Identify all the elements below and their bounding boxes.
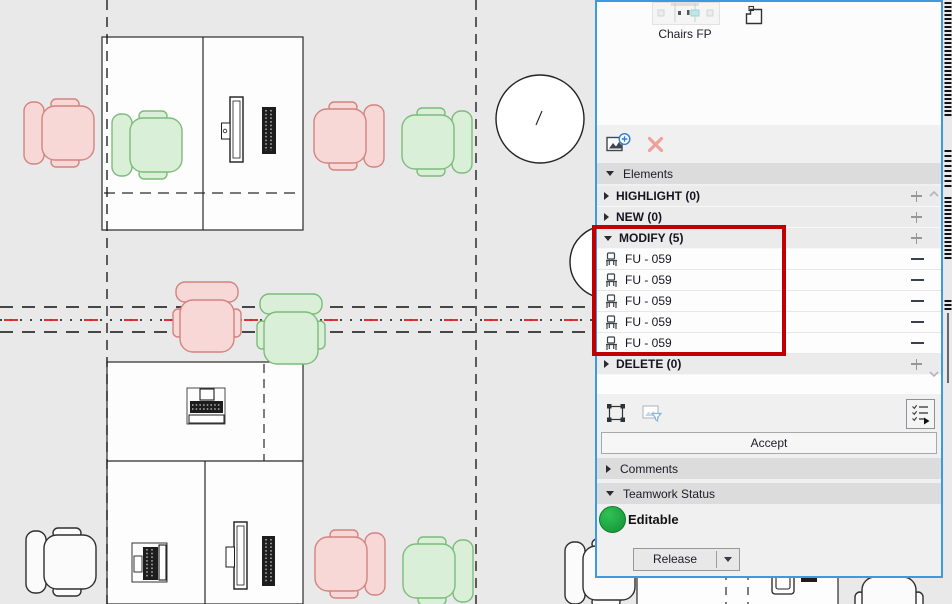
chair-element-icon	[604, 294, 618, 309]
remove-element-button[interactable]	[911, 321, 924, 324]
elements-section-header[interactable]: Elements	[597, 163, 941, 184]
editable-status-label: Editable	[628, 512, 679, 527]
comments-section-header[interactable]: Comments	[597, 458, 941, 479]
release-button-label[interactable]: Release	[634, 549, 716, 570]
expand-caret-icon	[604, 213, 609, 221]
elements-header-label: Elements	[623, 167, 673, 181]
element-row[interactable]: FU - 059	[597, 249, 941, 270]
element-label: FU - 059	[625, 336, 672, 350]
marquee-select-button[interactable]	[606, 403, 626, 423]
add-to-section-button[interactable]	[911, 233, 922, 244]
add-to-section-button[interactable]	[911, 191, 922, 202]
section-label: NEW (0)	[616, 210, 662, 224]
library-item-label: Chairs FP	[633, 27, 737, 41]
expand-caret-icon	[604, 360, 609, 368]
delete-button[interactable]	[647, 136, 664, 153]
release-split-button[interactable]: Release	[633, 548, 740, 571]
expand-caret-icon	[606, 465, 611, 473]
section-label: DELETE (0)	[616, 357, 681, 371]
scroll-down-icon[interactable]	[928, 370, 940, 378]
remove-element-button[interactable]	[911, 300, 924, 303]
remove-element-button[interactable]	[911, 342, 924, 345]
element-row[interactable]: FU - 059	[597, 291, 941, 312]
modify-section-row[interactable]: MODIFY (5)	[597, 228, 941, 249]
comments-header-label: Comments	[620, 462, 678, 476]
remove-element-button[interactable]	[911, 279, 924, 282]
changes-panel: Chairs FP	[595, 0, 943, 578]
chair-element-icon	[604, 315, 618, 330]
section-label: MODIFY (5)	[619, 231, 683, 245]
scroll-up-icon[interactable]	[928, 190, 940, 198]
filter-image-button[interactable]	[642, 404, 662, 422]
teamwork-status-section-header[interactable]: Teamwork Status	[597, 483, 941, 504]
filter-settings-button[interactable]	[906, 399, 935, 429]
element-label: FU - 059	[625, 273, 672, 287]
library-item-thumbnail[interactable]	[652, 2, 720, 25]
add-to-section-button[interactable]	[911, 212, 922, 223]
element-row[interactable]: FU - 059	[597, 312, 941, 333]
element-label: FU - 059	[625, 315, 672, 329]
delete-section-row[interactable]: DELETE (0)	[597, 354, 941, 375]
app-window: Chairs FP	[0, 0, 952, 604]
section-label: HIGHLIGHT (0)	[616, 189, 700, 203]
teamwork-header-label: Teamwork Status	[623, 487, 715, 501]
round-table	[496, 75, 584, 163]
library-preview-area: Chairs FP	[597, 2, 941, 125]
collapse-caret-icon	[604, 236, 612, 241]
element-label: FU - 059	[625, 252, 672, 266]
new-section-row[interactable]: NEW (0)	[597, 207, 941, 228]
panel-toolbar	[597, 125, 941, 163]
element-label: FU - 059	[625, 294, 672, 308]
element-change-list: HIGHLIGHT (0) NEW (0) MODIFY (5) FU - 05…	[597, 186, 941, 394]
collapse-caret-icon	[606, 171, 614, 176]
collapse-caret-icon	[606, 491, 614, 496]
release-dropdown-button[interactable]	[717, 549, 739, 570]
teamwork-status-row: Editable	[597, 504, 941, 546]
accept-button[interactable]: Accept	[601, 432, 937, 454]
editable-status-icon	[599, 506, 626, 533]
chevron-down-icon	[724, 557, 732, 562]
add-image-button[interactable]	[606, 133, 631, 155]
remove-element-button[interactable]	[911, 258, 924, 261]
selection-tools-row	[597, 394, 941, 432]
element-row[interactable]: FU - 059	[597, 270, 941, 291]
layout-stamp-icon[interactable]	[743, 5, 764, 30]
element-row[interactable]: FU - 059	[597, 333, 941, 354]
chair-element-icon	[604, 252, 618, 267]
chair-element-icon	[604, 336, 618, 351]
chair-element-icon	[604, 273, 618, 288]
highlight-section-row[interactable]: HIGHLIGHT (0)	[597, 186, 941, 207]
expand-caret-icon	[604, 192, 609, 200]
list-scrollbar[interactable]	[927, 186, 941, 394]
add-to-section-button[interactable]	[911, 359, 922, 370]
